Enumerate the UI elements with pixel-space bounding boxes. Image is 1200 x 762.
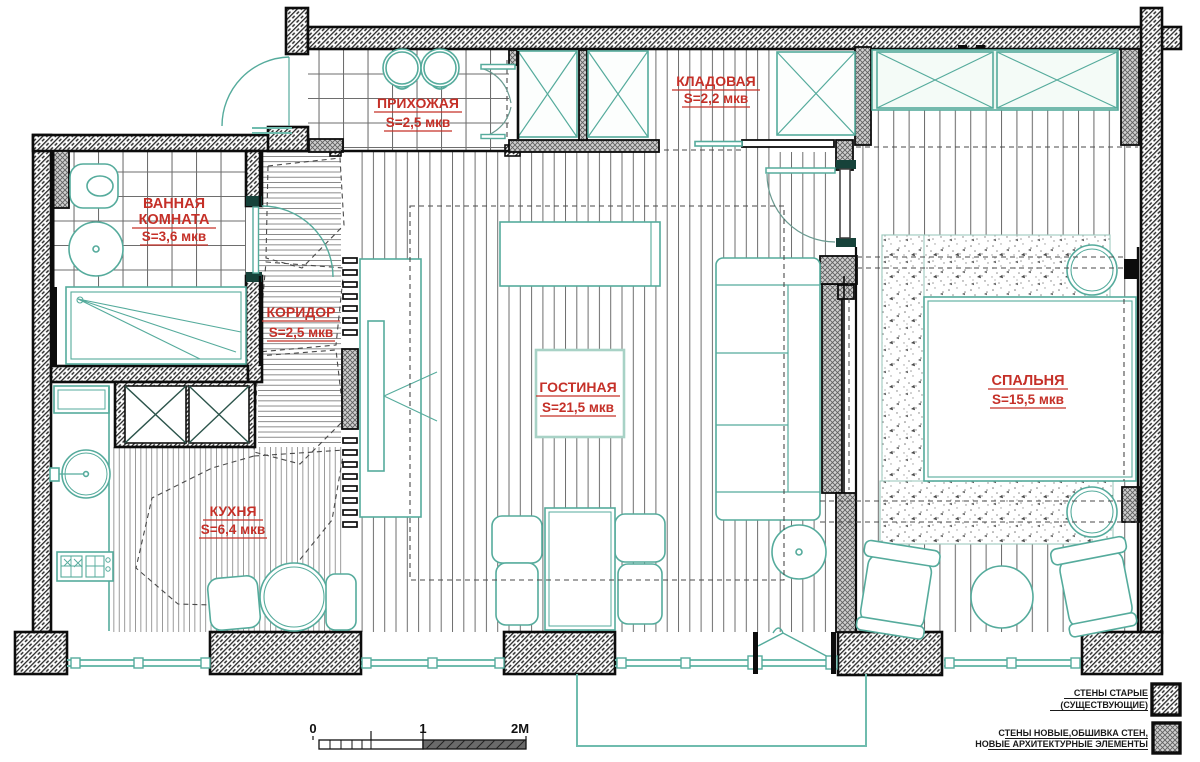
svg-text:0: 0: [309, 721, 316, 736]
svg-text:ВАННАЯ: ВАННАЯ: [143, 196, 205, 212]
svg-text:СТЕНЫ СТАРЫЕ: СТЕНЫ СТАРЫЕ: [1074, 688, 1148, 698]
svg-text:КУХНЯ: КУХНЯ: [209, 503, 256, 519]
svg-text:ПРИХОЖАЯ: ПРИХОЖАЯ: [377, 95, 459, 111]
svg-text:СТЕНЫ НОВЫЕ,ОБШИВКА СТЕН,: СТЕНЫ НОВЫЕ,ОБШИВКА СТЕН,: [998, 728, 1148, 738]
svg-text:S=2,2 мкв: S=2,2 мкв: [684, 91, 748, 106]
svg-text:S=2,5 мкв: S=2,5 мкв: [269, 325, 333, 340]
svg-text:S=6,4 мкв: S=6,4 мкв: [201, 522, 265, 537]
svg-text:ГОСТИНАЯ: ГОСТИНАЯ: [539, 379, 616, 395]
svg-text:КЛАДОВАЯ: КЛАДОВАЯ: [676, 73, 755, 89]
svg-text:(СУЩЕСТВУЮЩИЕ): (СУЩЕСТВУЮЩИЕ): [1060, 700, 1148, 710]
svg-text:КОРИДОР: КОРИДОР: [266, 304, 335, 320]
svg-text:S=21,5 мкв: S=21,5 мкв: [542, 400, 614, 415]
svg-text:СПАЛЬНЯ: СПАЛЬНЯ: [991, 373, 1064, 389]
svg-text:2M: 2M: [511, 721, 529, 736]
svg-text:S=15,5 мкв: S=15,5 мкв: [992, 392, 1064, 407]
svg-text:S=3,6 мкв: S=3,6 мкв: [142, 229, 206, 244]
svg-text:НОВЫЕ АРХИТЕКТУРНЫЕ ЭЛЕМЕНТЫ: НОВЫЕ АРХИТЕКТУРНЫЕ ЭЛЕМЕНТЫ: [975, 739, 1148, 749]
svg-text:КОМНАТА: КОМНАТА: [139, 212, 210, 228]
svg-text:S=2,5 мкв: S=2,5 мкв: [386, 115, 450, 130]
